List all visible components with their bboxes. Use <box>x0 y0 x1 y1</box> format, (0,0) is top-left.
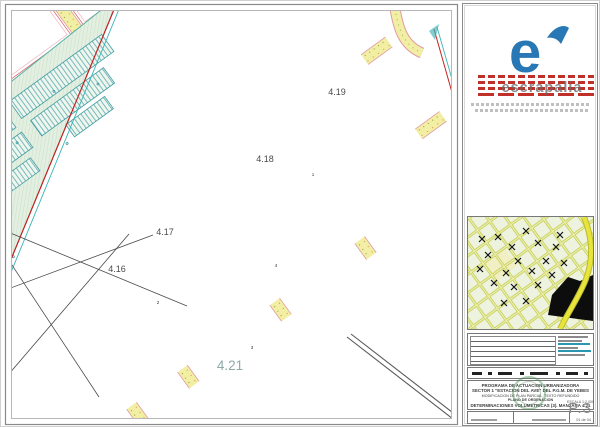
title-panel: e escrapalia <box>462 3 598 426</box>
signature-text-bar <box>532 419 566 421</box>
company-logo: e <box>501 20 579 80</box>
revision-note-bar <box>558 354 585 356</box>
stamp-icon <box>512 376 546 410</box>
sheet-page: 01 de 04 <box>576 418 591 422</box>
block-label-4-16: 4.16 <box>108 264 126 274</box>
revision-notes <box>558 336 592 363</box>
escrapalia-watermark: escrapalia <box>487 80 597 96</box>
revision-note-bar <box>558 340 582 342</box>
location-inset-map <box>467 216 594 330</box>
sheet-code: P.3 <box>568 400 592 417</box>
block-label-4-17: 4.17 <box>156 227 174 237</box>
fineprint-line <box>471 103 591 106</box>
revision-table <box>467 333 594 366</box>
revision-note-bar <box>558 336 588 338</box>
revision-note-bar <box>558 343 590 345</box>
area-label-4-21: 4.21 <box>217 358 243 373</box>
signature-cell-middle <box>513 412 570 423</box>
svg-text:e: e <box>509 20 541 80</box>
letterhead-line <box>478 75 594 78</box>
revision-note-bar <box>558 347 578 349</box>
revision-note-bar <box>558 350 591 352</box>
main-map: 4.19 4.18 4.17 4.16 4.21 1 2 3 4 <box>1 1 461 427</box>
signature-cell-left <box>468 412 514 423</box>
fineprint-line <box>475 109 589 112</box>
plan-sheet: 4.19 4.18 4.17 4.16 4.21 1 2 3 4 e <box>0 0 600 427</box>
block-label-4-18: 4.18 <box>256 154 274 164</box>
logo-e-icon: e <box>501 20 579 80</box>
block-label-4-19: 4.19 <box>328 87 346 97</box>
revision-lines <box>470 336 556 365</box>
signature-text-bar <box>471 419 497 421</box>
signature-row: P.3 01 de 04 <box>467 411 594 424</box>
